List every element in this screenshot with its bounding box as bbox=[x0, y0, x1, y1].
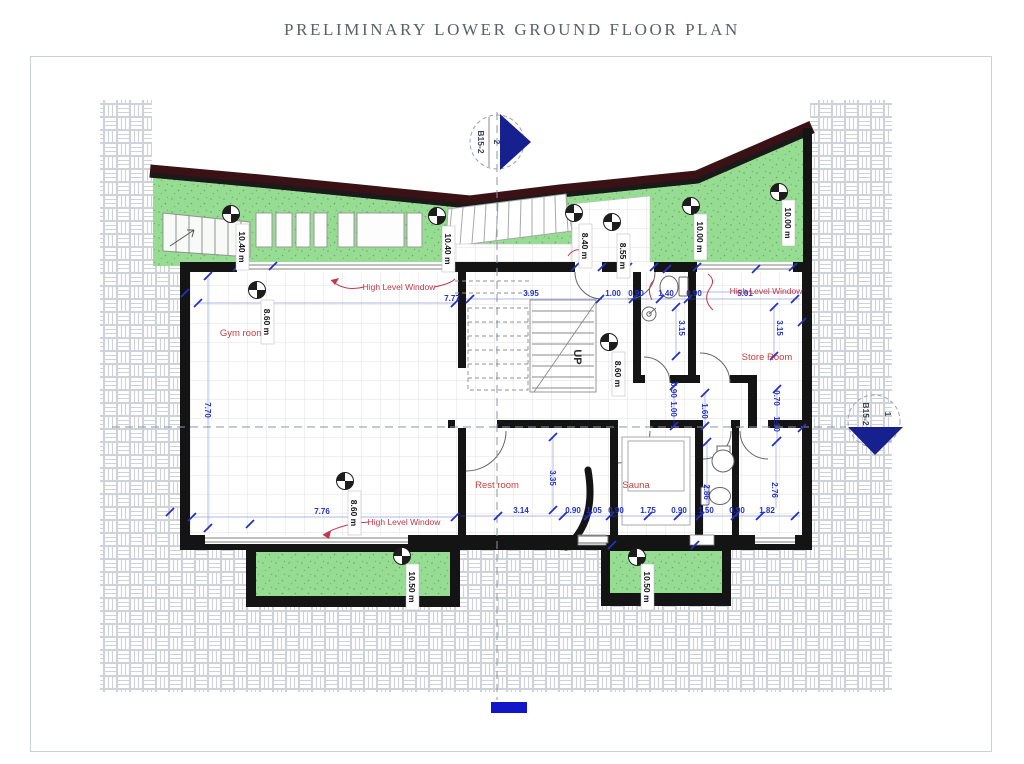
spot-level-icon bbox=[337, 473, 354, 490]
building-floor bbox=[180, 262, 812, 548]
section-sheet-label: B15-2 bbox=[861, 402, 871, 425]
spot-level-label: 10.50 m bbox=[642, 571, 652, 603]
dimension-label: 1.50 bbox=[698, 506, 714, 515]
spot-level-label: 10.00 m bbox=[783, 207, 793, 239]
room-label-sauna: Sauna bbox=[622, 480, 650, 491]
spot-level-icon bbox=[771, 184, 788, 201]
spot-level-icon bbox=[604, 214, 621, 231]
dimension-label: 2.86 bbox=[702, 484, 711, 500]
dimension-label: 1.82 bbox=[759, 506, 775, 515]
spot-level-icon bbox=[683, 198, 700, 215]
dimension-label: 1.40 bbox=[658, 289, 674, 298]
dimension-label: 1.00 bbox=[605, 289, 621, 298]
floor-drain bbox=[642, 307, 656, 321]
spot-level-label: 8.60 m bbox=[613, 361, 623, 388]
dimension-label: 3.14 bbox=[513, 506, 529, 515]
hlw-label-top: High Level Window bbox=[363, 282, 437, 292]
hlw-label-bottom: High Level Window bbox=[368, 517, 442, 527]
spot-level-icon bbox=[601, 334, 618, 351]
dimension-label: 1.60 bbox=[700, 403, 709, 419]
spot-level-icon bbox=[223, 206, 240, 223]
spot-level-icon bbox=[566, 205, 583, 222]
spot-level-icon bbox=[394, 548, 411, 565]
bench bbox=[578, 536, 608, 543]
dimension-label: 0.90 bbox=[686, 289, 702, 298]
room-label-gym: Gym room bbox=[220, 328, 264, 339]
dimension-label: 0.90 bbox=[628, 289, 644, 298]
grass-box-bottom-left bbox=[246, 543, 460, 607]
dimension-label: 0.90 bbox=[729, 506, 745, 515]
hlw-label-right: High Level Window bbox=[730, 286, 804, 296]
section-sheet-label: B15-2 bbox=[476, 130, 486, 153]
dimension-label: 7.77 bbox=[444, 294, 460, 303]
spot-level-label: 10.00 m bbox=[695, 221, 705, 253]
section-number-label: 1 bbox=[883, 412, 893, 417]
section-number-label: 2 bbox=[492, 140, 502, 145]
dimension-label: 7.70 bbox=[203, 402, 212, 418]
dimension-label: 2.76 bbox=[770, 482, 779, 498]
dimension-label: 0.90 bbox=[669, 382, 678, 398]
dimension-label: 0.90 bbox=[671, 506, 687, 515]
spot-level-icon bbox=[629, 549, 646, 566]
dimension-label: 7.76 bbox=[314, 507, 330, 516]
dimension-label: 0.90 bbox=[608, 506, 624, 515]
dimension-label: 1.10 bbox=[772, 416, 781, 432]
spot-level-icon bbox=[429, 208, 446, 225]
dimension-label: 1.00 bbox=[669, 401, 678, 417]
dimension-label: 1.75 bbox=[640, 506, 656, 515]
spot-level-label: 8.40 m bbox=[580, 233, 590, 260]
spot-level-label: 10.40 m bbox=[443, 233, 453, 265]
spot-level-label: 8.60 m bbox=[349, 500, 359, 527]
dimension-label: 3.15 bbox=[775, 320, 784, 336]
room-label-rest: Rest room bbox=[475, 480, 519, 491]
spot-level-label: 8.60 m bbox=[262, 309, 272, 336]
dimension-label: 3.35 bbox=[548, 470, 557, 486]
planter-boxes bbox=[256, 213, 422, 247]
dimension-label: 3.95 bbox=[523, 289, 539, 298]
spot-level-label: 10.50 m bbox=[407, 571, 417, 603]
room-label-store: Store Room bbox=[742, 352, 793, 363]
spot-level-icon bbox=[249, 282, 266, 299]
dimension-label: 0.70 bbox=[772, 390, 781, 406]
dimension-label: 0.90 bbox=[565, 506, 581, 515]
dimension-label: 3.15 bbox=[677, 320, 686, 336]
up-label: UP bbox=[571, 349, 583, 364]
scale-bar bbox=[491, 702, 527, 713]
spot-level-label: 10.40 m bbox=[237, 231, 247, 263]
floor-plan-svg: 7.77 3.95 1.00 0.90 1.40 0.90 5.01 7.76 … bbox=[0, 0, 1024, 764]
spot-level-label: 8.55 m bbox=[618, 243, 628, 270]
dimension-label: 1.05 bbox=[586, 506, 602, 515]
drawing-sheet: PRELIMINARY LOWER GROUND FLOOR PLAN bbox=[0, 0, 1024, 764]
